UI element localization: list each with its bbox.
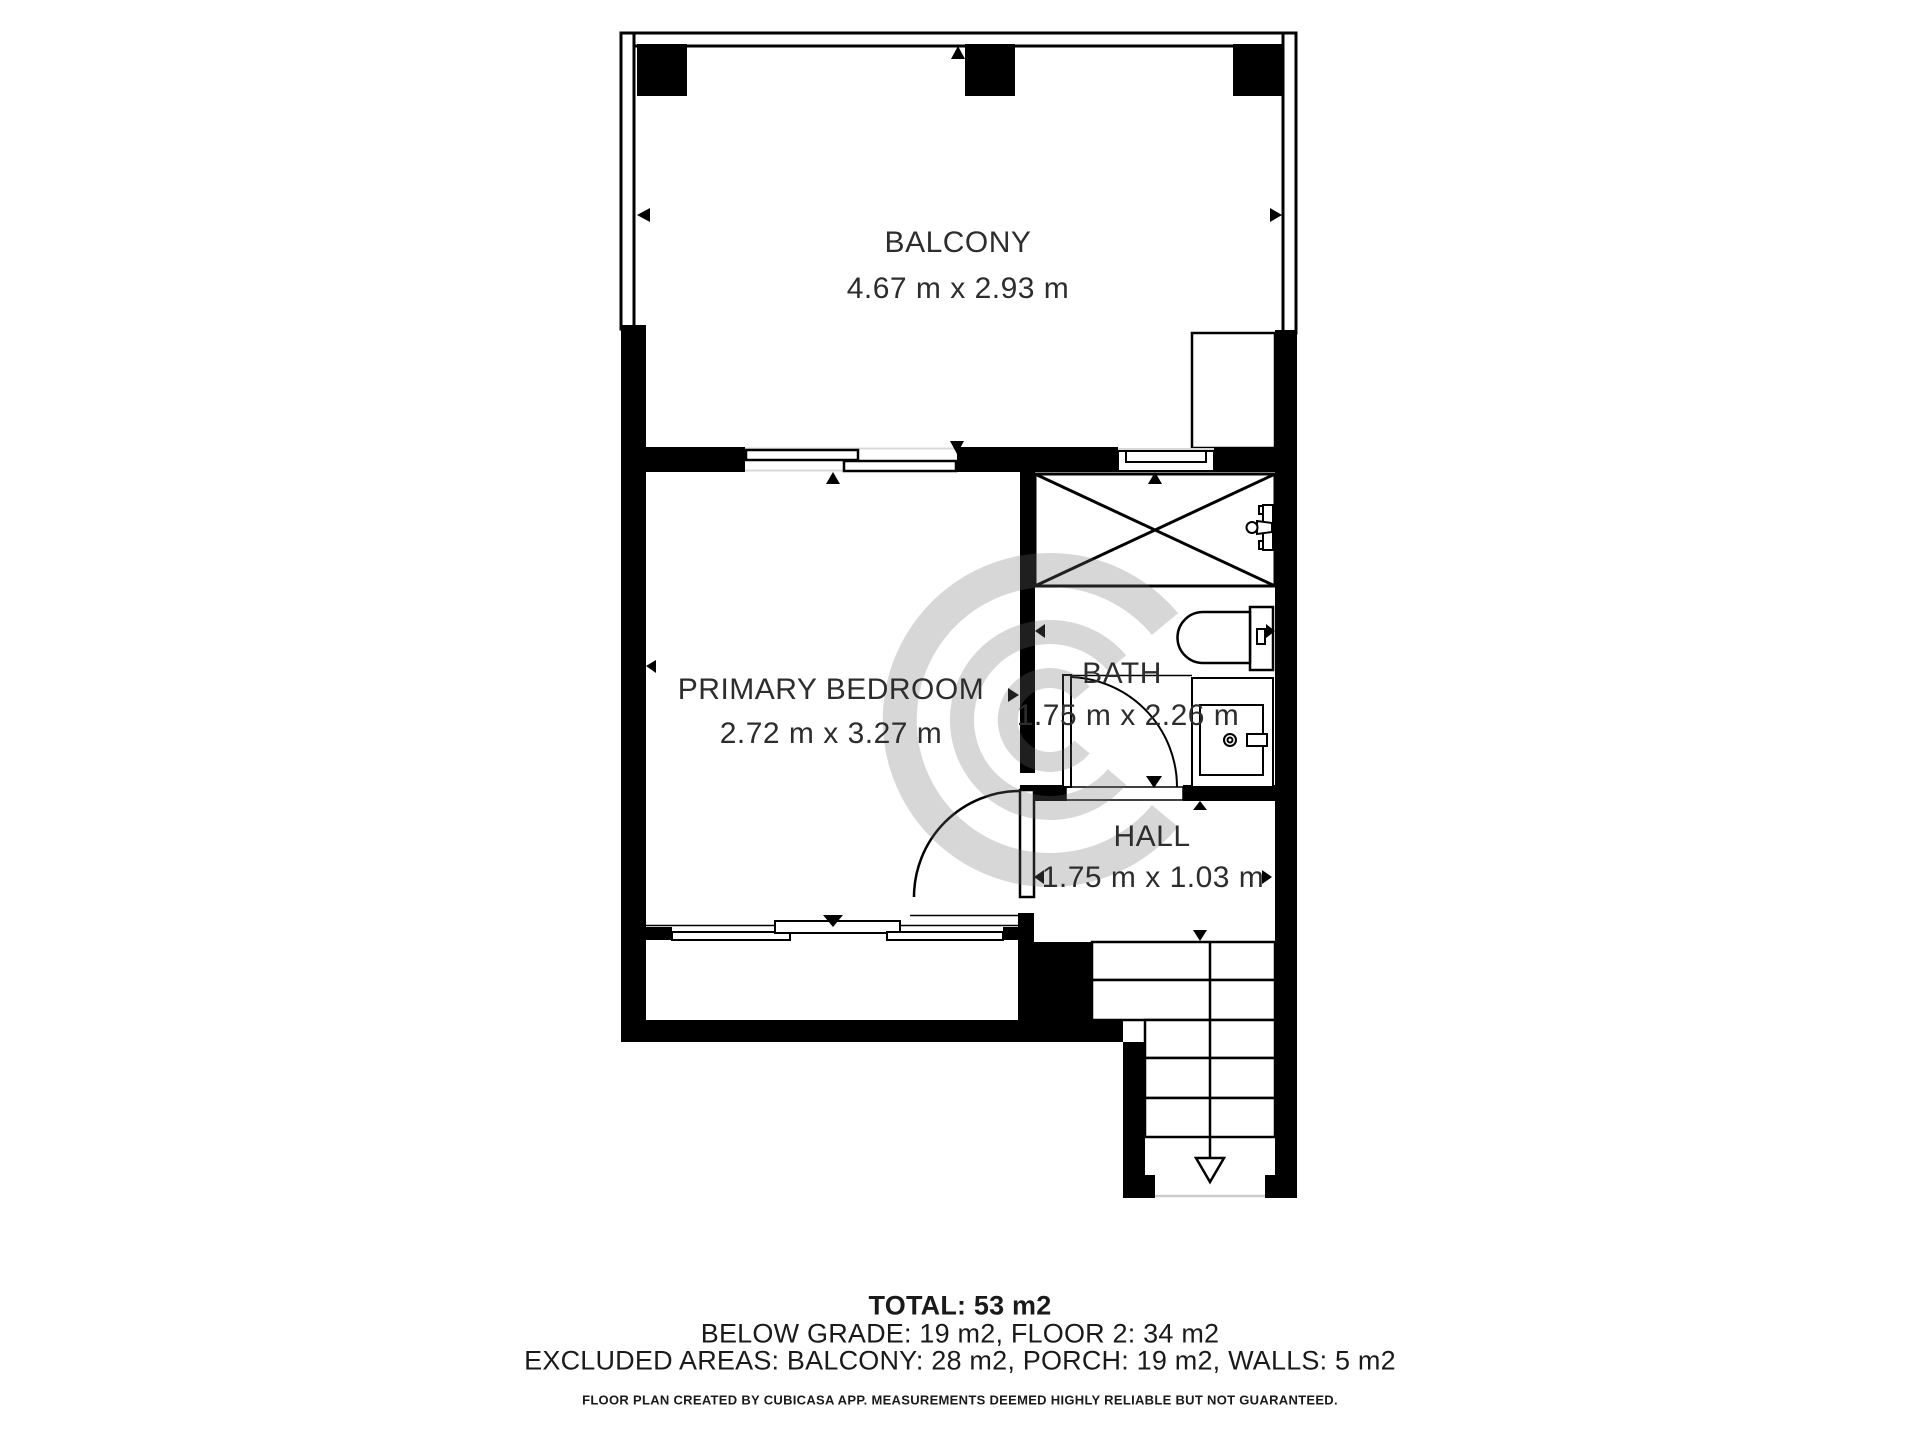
balcony-label: BALCONY xyxy=(885,226,1032,260)
stair-tread xyxy=(1092,980,1275,1020)
marker-balcony-right xyxy=(1270,208,1282,222)
wall-balcony-bottom-c xyxy=(1214,447,1297,472)
wall-porch-bottom xyxy=(621,1020,1123,1042)
balcony-storage-box xyxy=(1192,333,1275,448)
stair-tread xyxy=(1092,942,1275,980)
wall-left xyxy=(621,325,646,1042)
marker-sliding-door-bottom xyxy=(826,472,840,484)
bath-window xyxy=(1118,449,1214,471)
bath-label: BATH xyxy=(1082,657,1162,691)
toilet-icon xyxy=(1178,607,1274,670)
primary-bedroom-dimensions: 2.72 m x 3.27 m xyxy=(720,717,943,751)
wall-balcony-bottom-a xyxy=(621,447,745,472)
wall-bedroom-bottom-stub-l xyxy=(646,927,672,940)
summary-total: TOTAL: 53 m2 xyxy=(869,1291,1052,1322)
wall-stair-stub-l xyxy=(1123,1175,1155,1198)
marker-bedroom-left xyxy=(646,660,656,673)
hall-dimensions: 1.75 m x 1.03 m xyxy=(1042,861,1265,895)
bath-dimensions: 1.75 m x 2.26 m xyxy=(1017,699,1240,733)
wall-balcony-bottom-b xyxy=(957,447,1118,472)
balcony-dimensions: 4.67 m x 2.93 m xyxy=(847,272,1070,306)
bath-door xyxy=(1063,675,1192,800)
primary-bedroom-label: PRIMARY BEDROOM xyxy=(678,673,984,707)
wall-stair-left xyxy=(1123,1042,1145,1198)
wall-bedroom-bottom-stub-r xyxy=(1003,927,1018,940)
marker-bath-door xyxy=(1146,776,1162,788)
summary-excluded-areas: EXCLUDED AREAS: BALCONY: 28 m2, PORCH: 1… xyxy=(524,1346,1396,1377)
marker-hall-top xyxy=(1193,801,1207,810)
marker-hall-bottom xyxy=(1193,930,1207,941)
marker-balcony-left xyxy=(637,208,650,222)
floor-plan-page: BALCONY 4.67 m x 2.93 m PRIMARY BEDROOM … xyxy=(0,0,1920,1440)
hall-label: HALL xyxy=(1113,820,1190,854)
marker-balcony-top xyxy=(951,46,965,59)
sliding-door xyxy=(745,449,957,472)
wall-stair-stub-r xyxy=(1265,1175,1297,1198)
floor-plan-drawing xyxy=(0,0,1920,1440)
footer-disclaimer: FLOOR PLAN CREATED BY CUBICASA APP. MEAS… xyxy=(582,1393,1338,1408)
wall-hall-left-strip xyxy=(1018,913,1034,942)
